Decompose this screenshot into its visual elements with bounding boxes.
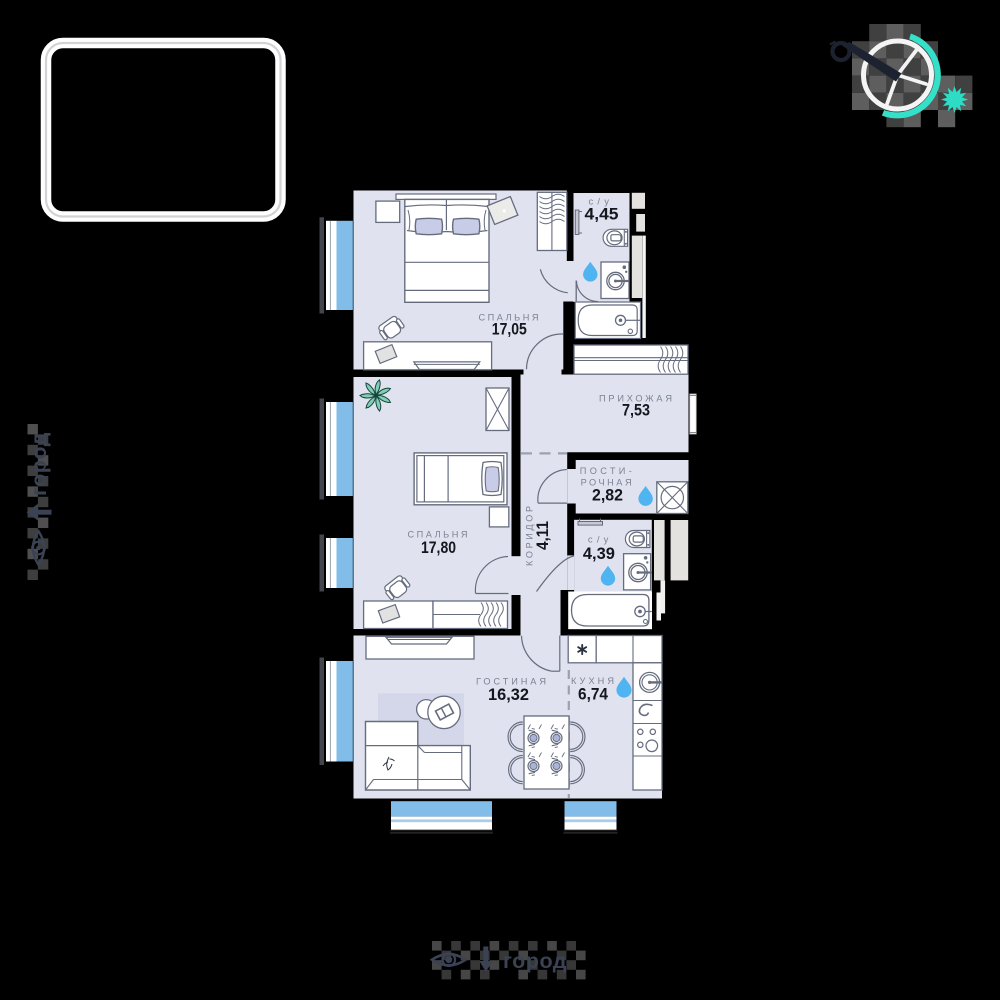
svg-text:ГОСТИНАЯ: ГОСТИНАЯ <box>476 677 546 687</box>
svg-text:4,45: 4,45 <box>585 206 619 224</box>
svg-text:17,80: 17,80 <box>421 539 456 557</box>
svg-text:4,39: 4,39 <box>583 545 615 563</box>
svg-text:КОРИДОР: КОРИДОР <box>525 506 535 566</box>
svg-text:город: город <box>503 949 567 973</box>
svg-text:2,82: 2,82 <box>592 487 623 505</box>
svg-text:16,32: 16,32 <box>488 686 529 704</box>
svg-text:6,74: 6,74 <box>578 686 609 704</box>
svg-text:4,11: 4,11 <box>534 521 552 550</box>
svg-text:7,53: 7,53 <box>622 402 650 420</box>
svg-text:город: город <box>27 432 51 496</box>
svg-text:с/у: с/у <box>588 535 610 546</box>
svg-text:17,05: 17,05 <box>492 321 527 339</box>
